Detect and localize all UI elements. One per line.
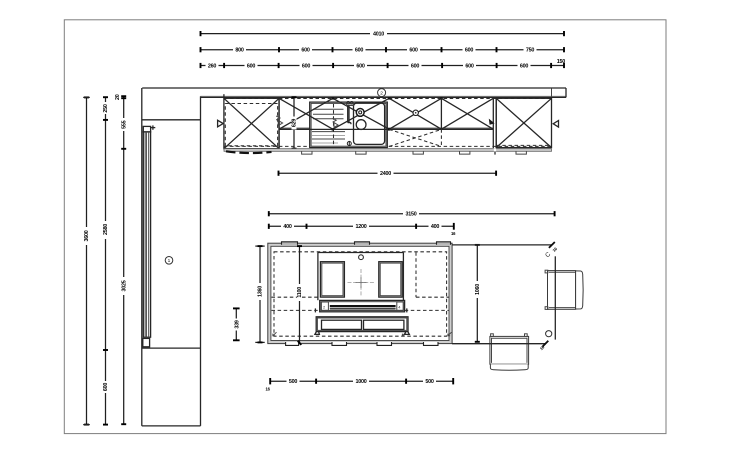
svg-text:629: 629 (292, 119, 298, 127)
svg-text:600: 600 (356, 63, 364, 69)
svg-text:1200: 1200 (356, 224, 367, 230)
svg-text:3600: 3600 (84, 230, 90, 241)
svg-text:3025: 3025 (121, 280, 127, 291)
svg-text:600: 600 (302, 63, 310, 69)
svg-text:2580: 2580 (103, 224, 109, 235)
svg-text:1060: 1060 (475, 284, 481, 295)
svg-text:750: 750 (526, 48, 534, 54)
svg-text:600: 600 (301, 48, 309, 54)
svg-text:339: 339 (234, 320, 240, 328)
svg-text:250: 250 (103, 104, 109, 112)
svg-text:400: 400 (283, 224, 291, 230)
svg-text:3150: 3150 (406, 212, 417, 218)
svg-text:1000: 1000 (356, 379, 367, 385)
svg-text:150: 150 (557, 59, 565, 65)
svg-text:500: 500 (425, 379, 433, 385)
svg-text:600: 600 (411, 63, 419, 69)
svg-text:2400: 2400 (380, 171, 391, 177)
svg-text:20: 20 (115, 94, 121, 100)
svg-text:600: 600 (409, 48, 417, 54)
svg-text:1360: 1360 (258, 286, 264, 297)
svg-text:600: 600 (465, 48, 473, 54)
svg-text:555: 555 (121, 120, 127, 128)
svg-text:1: 1 (168, 258, 171, 264)
svg-text:4010: 4010 (373, 31, 384, 37)
svg-text:2: 2 (380, 91, 383, 97)
svg-text:800: 800 (235, 48, 243, 54)
svg-text:600: 600 (247, 63, 255, 69)
svg-text:600: 600 (465, 63, 473, 69)
svg-text:500: 500 (289, 379, 297, 385)
svg-text:400: 400 (431, 224, 439, 230)
svg-text:600: 600 (103, 383, 109, 391)
svg-text:600: 600 (520, 63, 528, 69)
svg-text:600: 600 (355, 48, 363, 54)
svg-text:1100: 1100 (297, 287, 303, 298)
svg-text:260: 260 (208, 63, 216, 69)
